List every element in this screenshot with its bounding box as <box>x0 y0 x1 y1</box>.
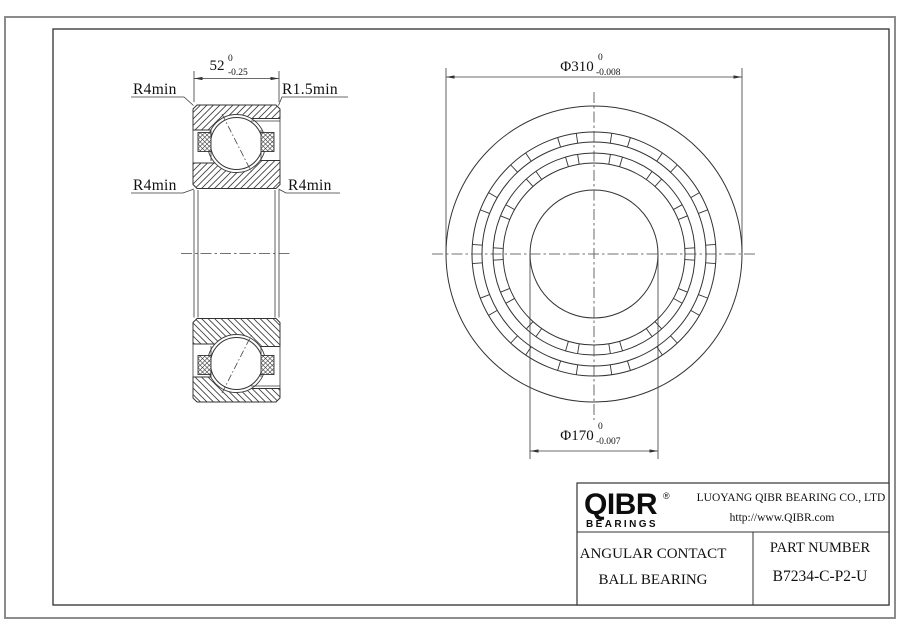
cage-section-right <box>261 356 274 375</box>
ball <box>211 118 263 170</box>
label-r1p5-top-right: R1.5min <box>282 81 338 98</box>
drawing-page: 52 0 -0.25 R4min R1.5min R4min R4min <box>0 0 900 636</box>
pocket-separator-line <box>685 248 695 249</box>
dim-width-value: 52 <box>210 58 225 74</box>
cage-section-left <box>198 133 211 152</box>
section-lower-half <box>193 319 280 403</box>
pocket-separator-line <box>493 260 503 261</box>
dim-outer-value: Φ310 <box>560 59 593 75</box>
title-block: QIBR ® BEARINGS LUOYANG QIBR BEARING CO.… <box>577 483 889 605</box>
logo-text: QIBR <box>584 488 658 521</box>
label-r4-mid-right: R4min <box>288 177 332 194</box>
cage-section-left <box>198 356 211 375</box>
dim-width-tol-lower: -0.25 <box>228 68 248 78</box>
logo-tagline: BEARINGS <box>586 519 658 530</box>
label-r4-top-left: R4min <box>133 81 177 98</box>
pocket-separator-line <box>493 248 503 249</box>
dim-outer-tol-upper: 0 <box>598 53 603 63</box>
company-name: LUOYANG QIBR BEARING CO., LTD <box>697 492 886 504</box>
section-upper-half <box>193 105 280 189</box>
bearing-engineering-drawing: 52 0 -0.25 R4min R1.5min R4min R4min <box>0 0 900 636</box>
dim-bore-tol-upper: 0 <box>598 422 603 432</box>
company-website: http://www.QIBR.com <box>730 512 835 524</box>
label-r4-mid-left: R4min <box>133 177 177 194</box>
part-number-label: PART NUMBER <box>770 540 871 556</box>
dim-width-tol-upper: 0 <box>228 54 233 64</box>
product-type-line1: ANGULAR CONTACT <box>580 546 727 562</box>
dim-bore-tol-lower: -0.007 <box>596 437 621 447</box>
registered-mark-icon: ® <box>663 491 670 501</box>
ball <box>211 338 263 390</box>
product-type-line2: BALL BEARING <box>598 572 707 588</box>
dim-outer-tol-lower: -0.008 <box>596 68 621 78</box>
dim-bore-value: Φ170 <box>560 428 593 444</box>
pocket-separator-line <box>685 260 695 261</box>
part-number-value: B7234-C-P2-U <box>773 568 868 585</box>
cage-section-right <box>261 133 274 152</box>
